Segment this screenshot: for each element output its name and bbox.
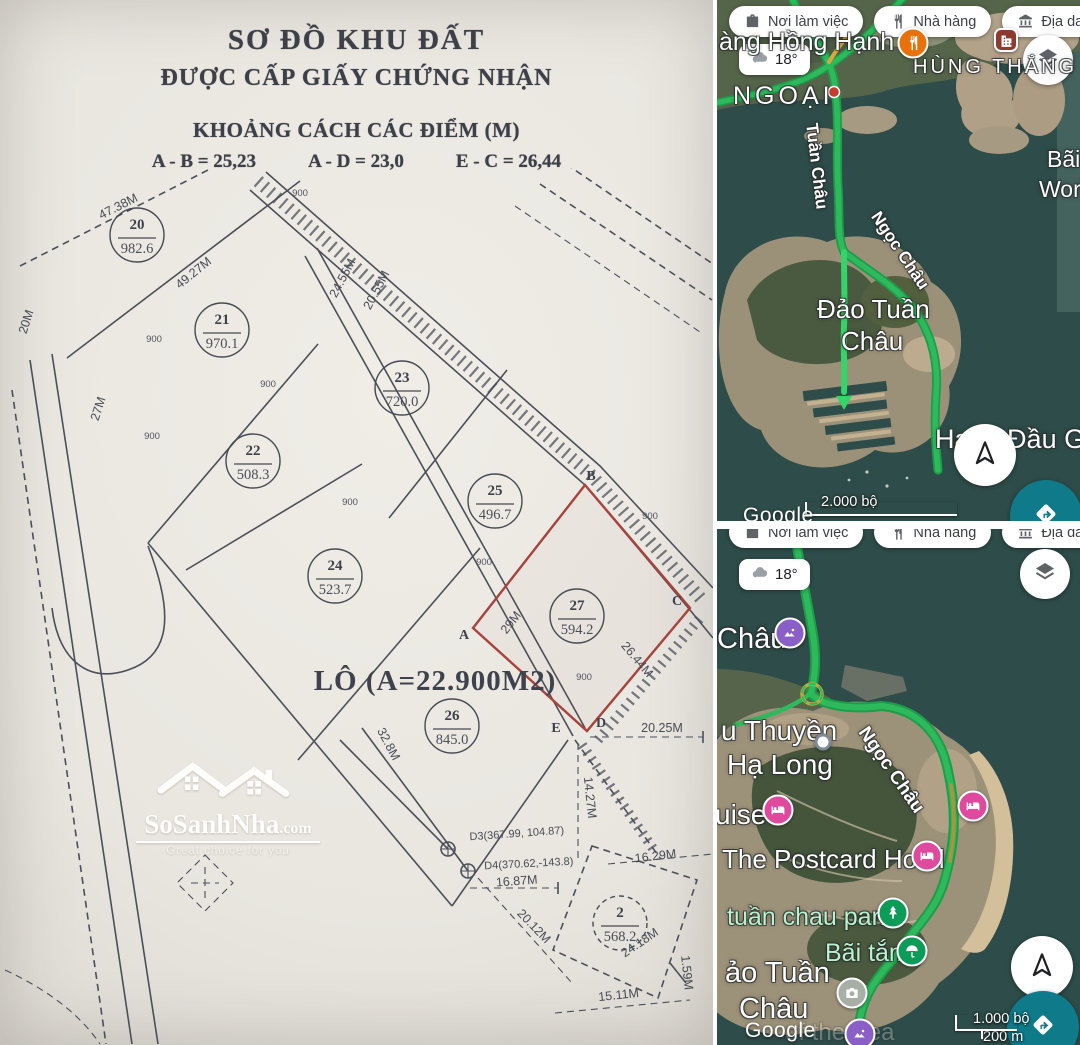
filter-chip-briefcase[interactable]: Nơi làm việc (729, 529, 863, 548)
map-label: àng Hồng Hạnh 6 (719, 28, 915, 57)
hotel-marker[interactable] (912, 841, 943, 872)
plot-circle-24: 24523.7 (308, 549, 362, 603)
svg-text:970.1: 970.1 (206, 336, 239, 352)
watermark-houses-icon (153, 756, 303, 806)
google-attribution: Google (745, 1019, 816, 1043)
document-header: SƠ ĐỒ KHU ĐẤT ĐƯỢC CẤP GIẤY CHỨNG NHẬN K… (0, 24, 713, 173)
plot-circle-25: 25496.7 (468, 474, 522, 528)
map-label: Châu (841, 326, 903, 357)
category-chip-bar: Nơi làm việcNhà hàngĐịa danhKhách sạn (729, 529, 1080, 548)
angle-mark: 900 (576, 672, 592, 683)
measurement-label: 27M (88, 395, 109, 422)
chip-label: Địa danh (1041, 14, 1080, 30)
map-label: HÙNG THẮNG (913, 56, 1077, 79)
angle-mark: 900 (476, 557, 492, 568)
layers-icon (1033, 560, 1057, 589)
camera-marker[interactable] (837, 978, 868, 1009)
plot-circle-23: 23720.0 (375, 361, 429, 415)
measurement-label: 16.29M (634, 847, 677, 866)
measurement-label: 32.8M (374, 725, 403, 762)
survey-sketch: LÔ (A=22.900M2) 20982.621970.122508.3237… (0, 168, 713, 1045)
document-title: SƠ ĐỒ KHU ĐẤT (0, 24, 713, 57)
scale-tick (981, 1029, 983, 1039)
park-marker[interactable] (878, 898, 909, 929)
boundary-point-C: C (672, 594, 682, 609)
svg-text:22: 22 (246, 443, 261, 459)
map-label: tuần chau park (727, 903, 892, 932)
angle-mark: 900 (292, 188, 308, 199)
watermark-divider (136, 841, 320, 843)
svg-text:496.7: 496.7 (479, 507, 512, 523)
measurement-label: 16.87M (495, 873, 538, 890)
svg-text:27: 27 (570, 598, 586, 614)
temperature-label: 18° (775, 566, 798, 583)
svg-text:21: 21 (215, 312, 230, 328)
boundary-point-A: A (459, 628, 470, 643)
angle-mark: 900 (342, 497, 358, 508)
layers-button[interactable] (1020, 549, 1070, 599)
weather-chip[interactable]: 18° (739, 559, 810, 590)
plot-circle-20: 20982.6 (110, 208, 164, 262)
beach-marker[interactable] (897, 936, 928, 967)
angle-mark: 900 (260, 379, 276, 390)
svg-text:508.3: 508.3 (237, 467, 270, 483)
chip-label: Địa danh (1041, 529, 1080, 541)
plot-circle-26: 26845.0 (425, 699, 479, 753)
my-location-button[interactable] (1011, 936, 1073, 998)
svg-text:20: 20 (130, 217, 145, 233)
hotel-marker[interactable] (958, 791, 989, 822)
attraction-marker[interactable] (775, 618, 806, 649)
svg-text:2: 2 (616, 905, 624, 921)
filter-chip-restaurant[interactable]: Nhà hàng (874, 529, 991, 548)
directions-icon (1026, 1008, 1060, 1045)
navigation-arrow-icon (1027, 950, 1057, 985)
boundary-point-D: D (596, 716, 606, 731)
map-top-panel: Nơi làm việcNhà hàngĐịa danhKhách sạn 18… (717, 0, 1080, 521)
distances-heading: KHOẢNG CÁCH CÁC ĐIỂM (M) (0, 118, 713, 143)
lot-area-note: LÔ (A=22.900M2) (314, 664, 557, 697)
my-location-button[interactable] (954, 424, 1016, 486)
map-label: uise (717, 799, 766, 831)
scale-line (805, 502, 957, 516)
measurement-label: 20.55M (360, 268, 392, 311)
attraction-marker[interactable] (845, 1019, 876, 1045)
map-label: World (1039, 176, 1080, 203)
measurement-label: D3(367.99, 104.87) (469, 825, 564, 844)
map-label: Hạ Long (727, 749, 833, 781)
cloud-icon (751, 564, 769, 586)
svg-text:845.0: 845.0 (436, 732, 469, 748)
svg-text:25: 25 (488, 483, 503, 499)
chip-label: Nhà hàng (913, 14, 976, 30)
restaurant-marker[interactable] (898, 28, 929, 59)
poi-marker[interactable] (815, 734, 832, 751)
measurement-label: D4(370.62,-143.8) (484, 856, 574, 873)
svg-text:26: 26 (445, 708, 461, 724)
navigation-arrow-icon (970, 438, 1000, 473)
angle-mark: 900 (144, 431, 160, 442)
scale-line (955, 1015, 1017, 1031)
svg-text:720.0: 720.0 (386, 394, 419, 410)
scale-label-secondary: 200 m (983, 1029, 1023, 1045)
map-bottom-panel: Nơi làm việcNhà hàngĐịa danhKhách sạn 18… (717, 529, 1080, 1045)
watermark-tagline: Great choice for you (126, 845, 330, 857)
directions-icon (1029, 497, 1063, 522)
chip-label: Nhà hàng (913, 529, 976, 541)
measurement-label: 14.27M (581, 776, 599, 819)
measurement-label: 15.11M (598, 986, 640, 1004)
angle-mark: 900 (146, 334, 162, 345)
measurement-label: 1.59M (678, 955, 696, 991)
plot-circle-21: 21970.1 (195, 303, 249, 357)
hotel-marker[interactable] (763, 795, 794, 826)
measurement-label: 20.12M (514, 906, 553, 946)
plot-circle-22: 22508.3 (226, 434, 280, 488)
map-label: NGOẠI (733, 82, 834, 111)
angle-mark: 900 (642, 511, 658, 522)
document-subtitle: ĐƯỢC CẤP GIẤY CHỨNG NHẬN (0, 65, 713, 92)
screenshot-collage: SƠ ĐỒ KHU ĐẤT ĐƯỢC CẤP GIẤY CHỨNG NHẬN K… (0, 0, 1080, 1045)
land-survey-document: SƠ ĐỒ KHU ĐẤT ĐƯỢC CẤP GIẤY CHỨNG NHẬN K… (0, 0, 713, 1045)
boundary-point-B: B (586, 469, 595, 484)
svg-text:24: 24 (328, 558, 344, 574)
measurement-label: 20M (16, 308, 37, 335)
building-marker[interactable] (994, 28, 1018, 52)
filter-chip-landmark[interactable]: Địa danh (1002, 529, 1080, 548)
svg-text:523.7: 523.7 (319, 582, 352, 598)
sosanhnha-watermark: SoSanhNha.com Great choice for you (126, 756, 330, 857)
map-label: ảo Tuần (725, 957, 830, 990)
svg-text:23: 23 (395, 370, 410, 386)
boundary-point-E: E (551, 721, 560, 736)
svg-text:982.6: 982.6 (121, 241, 154, 257)
google-attribution: Google (743, 504, 814, 521)
map-label: Đảo Tuần (817, 294, 930, 325)
svg-text:594.2: 594.2 (561, 622, 594, 638)
map-label: Bãi (1047, 146, 1080, 173)
chip-label: Nơi làm việc (768, 529, 848, 541)
watermark-brand: SoSanhNha.com (126, 811, 330, 838)
measurement-label: 20.25M (641, 721, 683, 735)
